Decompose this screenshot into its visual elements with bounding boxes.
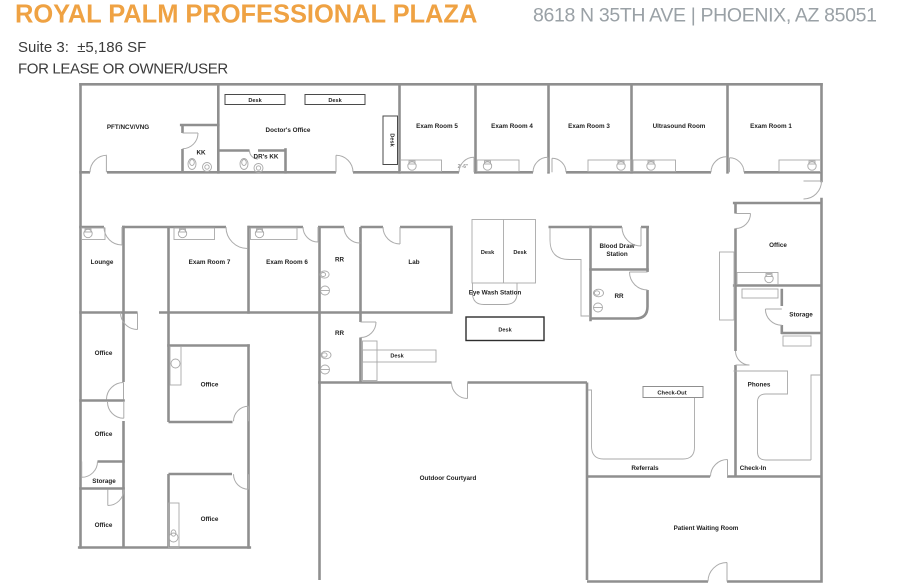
svg-text:Eye Wash Station: Eye Wash Station (469, 290, 522, 297)
svg-text:Station: Station (606, 251, 627, 258)
svg-text:Suite 3: ±5,186 SF: Suite 3: ±5,186 SF (18, 39, 146, 56)
svg-text:Phones: Phones (748, 382, 771, 389)
svg-text:Office: Office (201, 382, 219, 389)
svg-text:Exam Room 1: Exam Room 1 (750, 123, 792, 130)
svg-text:DR's KK: DR's KK (254, 154, 279, 161)
svg-text:Office: Office (769, 242, 787, 249)
svg-text:Exam Room 4: Exam Room 4 (491, 123, 533, 130)
svg-text:Exam Room 7: Exam Room 7 (189, 259, 231, 266)
svg-text:Outdoor Courtyard: Outdoor Courtyard (420, 475, 477, 482)
svg-text:Exam Room 6: Exam Room 6 (266, 259, 308, 266)
svg-text:Desk: Desk (498, 328, 512, 334)
svg-text:Desk: Desk (481, 250, 495, 256)
svg-text:8618 N 35TH AVE | PHOENIX, AZ: 8618 N 35TH AVE | PHOENIX, AZ 85051 (533, 5, 877, 27)
svg-text:Blood Draw: Blood Draw (600, 243, 635, 250)
svg-text:Office: Office (201, 516, 219, 523)
svg-text:Storage: Storage (92, 478, 116, 485)
svg-text:Doctor's Office: Doctor's Office (266, 127, 311, 134)
svg-text:Referrals: Referrals (631, 465, 659, 472)
svg-text:Lounge: Lounge (91, 259, 114, 266)
svg-text:RR: RR (335, 257, 345, 264)
svg-text:FOR LEASE OR OWNER/USER: FOR LEASE OR OWNER/USER (18, 61, 228, 78)
svg-text:Desk: Desk (328, 98, 342, 104)
svg-text:KK: KK (196, 150, 206, 157)
svg-text:ROYAL PALM PROFESSIONAL PLAZA: ROYAL PALM PROFESSIONAL PLAZA (15, 1, 477, 29)
svg-text:RR: RR (335, 330, 345, 337)
svg-text:Desk: Desk (389, 133, 395, 147)
svg-text:Patient Waiting Room: Patient Waiting Room (674, 525, 739, 532)
svg-text:RR: RR (614, 293, 624, 300)
svg-text:Check-In: Check-In (740, 465, 767, 472)
svg-text:2'-6": 2'-6" (458, 164, 469, 170)
svg-text:Check-Out: Check-Out (657, 390, 686, 396)
svg-text:Ultrasound Room: Ultrasound Room (653, 123, 706, 130)
svg-text:Desk: Desk (513, 250, 527, 256)
svg-text:Office: Office (95, 522, 113, 529)
svg-text:Office: Office (95, 431, 113, 438)
svg-text:Office: Office (95, 350, 113, 357)
svg-text:Lab: Lab (408, 259, 419, 266)
svg-text:Storage: Storage (789, 312, 813, 319)
svg-text:Exam Room 5: Exam Room 5 (416, 123, 458, 130)
svg-text:PFT/NCV/VNG: PFT/NCV/VNG (107, 124, 149, 131)
svg-text:Exam Room 3: Exam Room 3 (568, 123, 610, 130)
svg-text:Desk: Desk (248, 98, 262, 104)
svg-text:Desk: Desk (390, 354, 404, 360)
